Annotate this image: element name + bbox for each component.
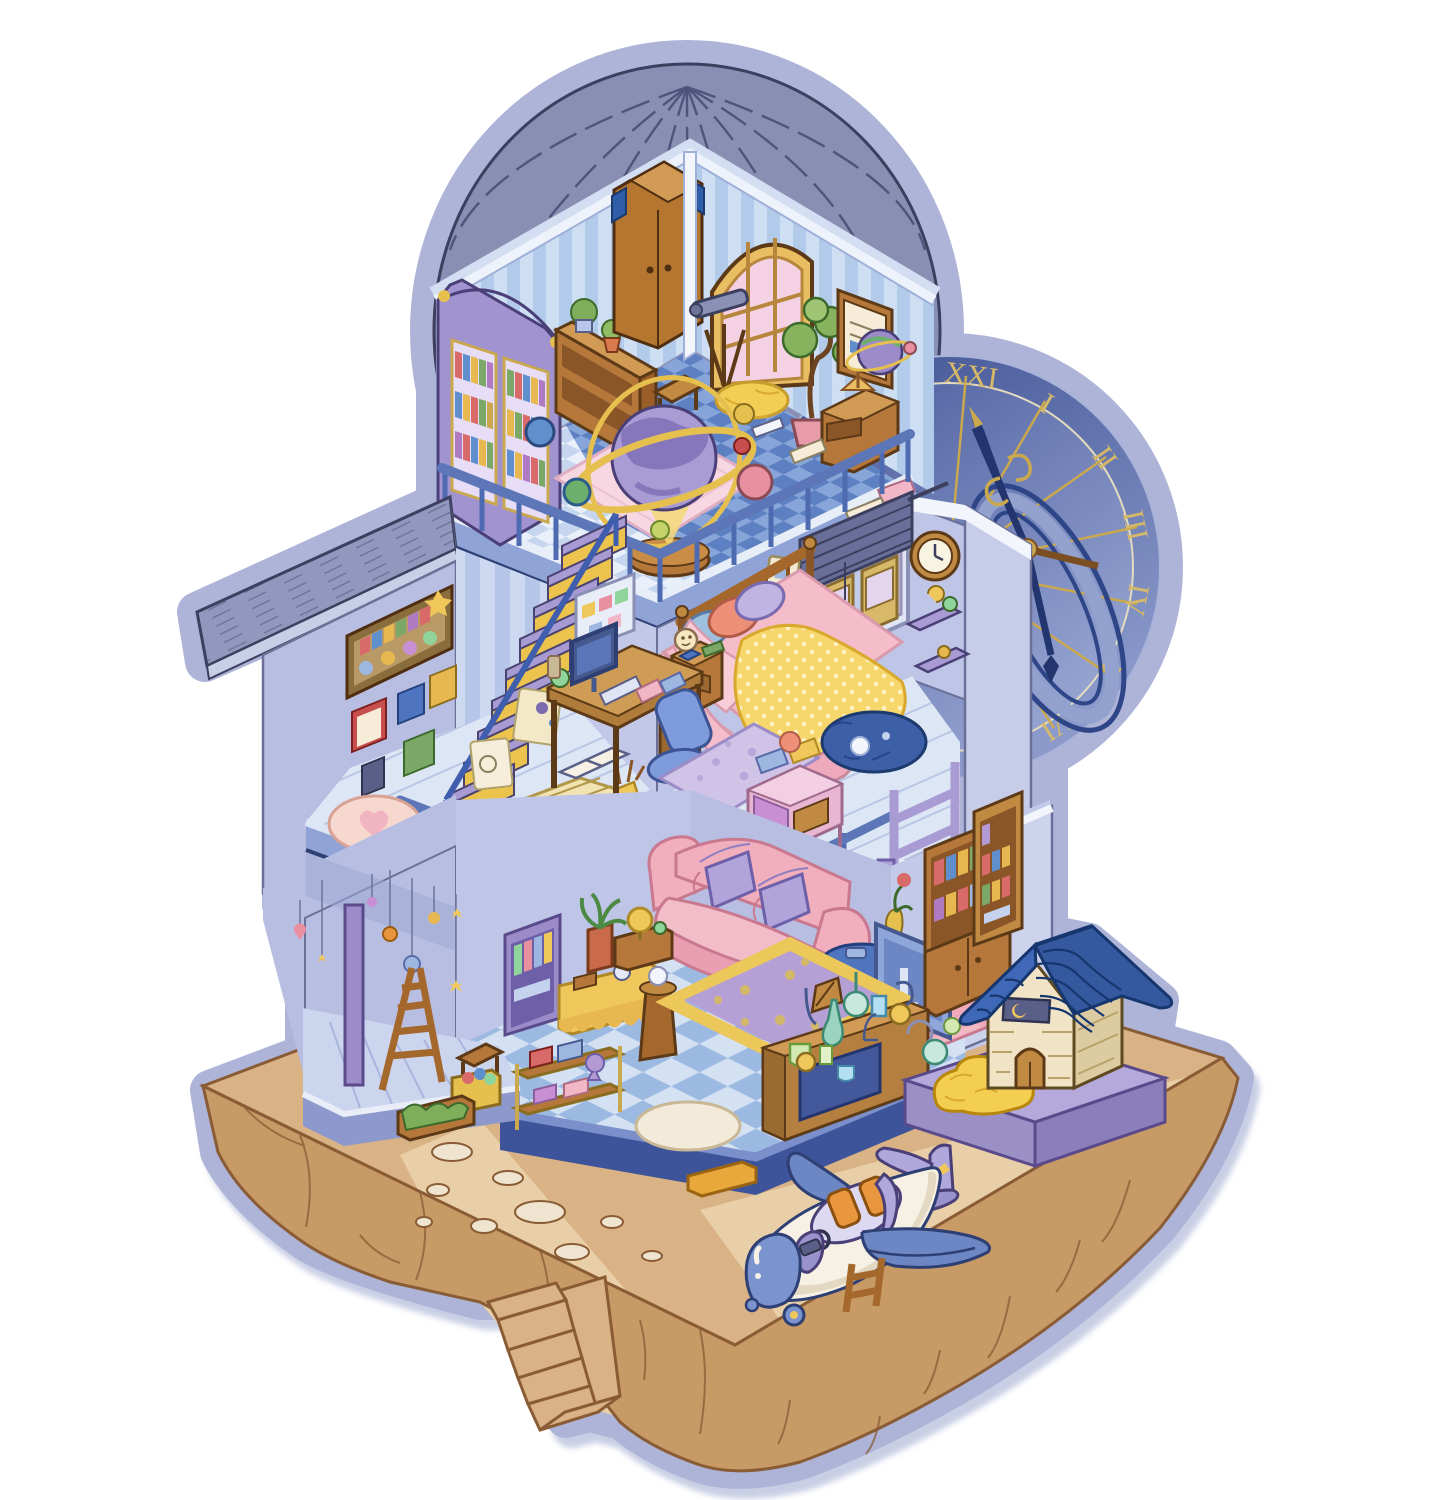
svg-text:IV: IV bbox=[1117, 581, 1155, 619]
